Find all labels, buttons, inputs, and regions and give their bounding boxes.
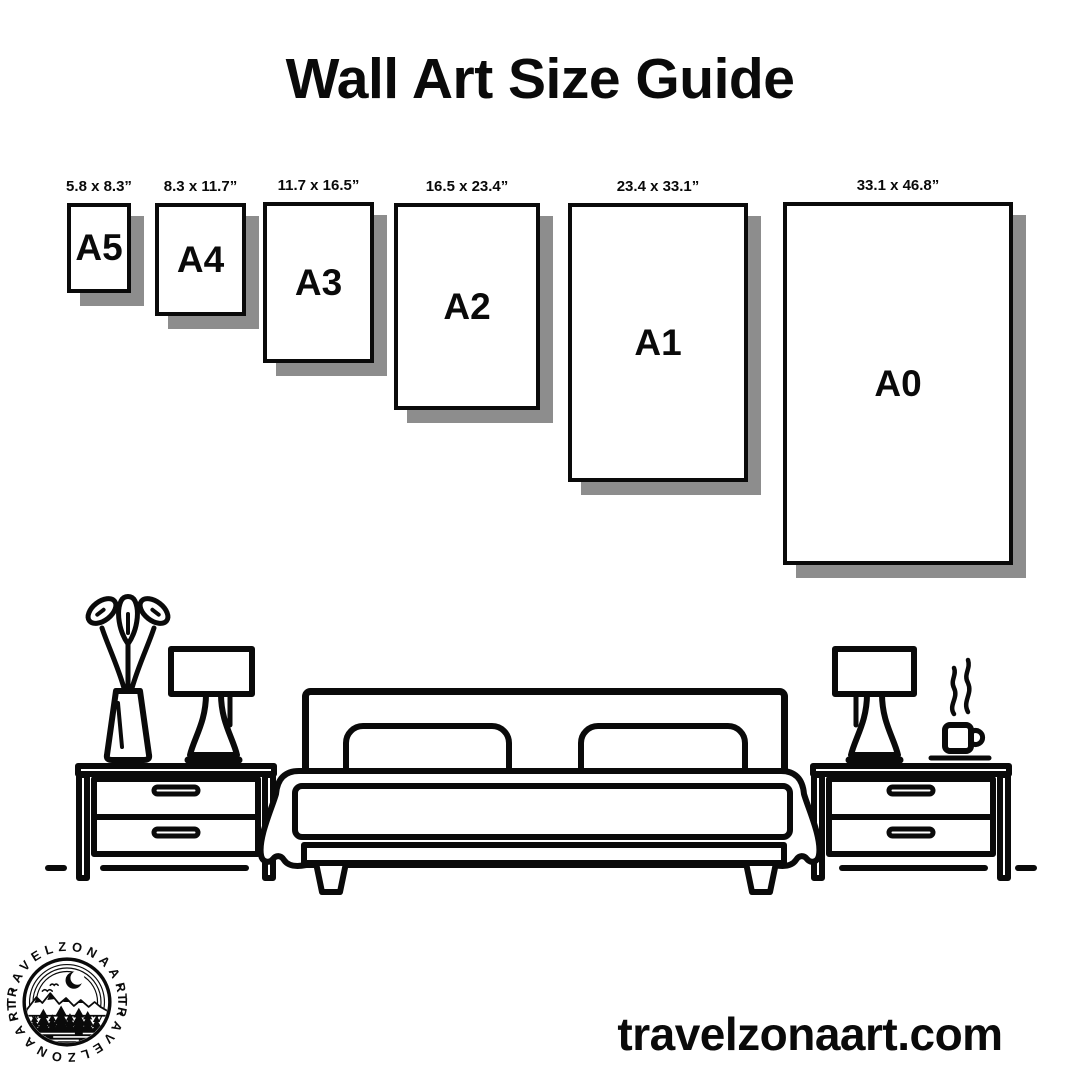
logo-emblem-scene [26, 965, 109, 1043]
frame-size-label: 8.3 x 11.7” [164, 178, 237, 195]
birds-icon [42, 984, 58, 991]
drawer-handle [154, 787, 198, 794]
coffee-cup-icon [931, 660, 989, 758]
frame-letter: A2 [443, 286, 490, 328]
drawer-handle [154, 829, 198, 836]
blanket-panel [295, 786, 790, 837]
frame-letter: A5 [75, 227, 122, 269]
table-lamp-right-icon [835, 649, 914, 760]
vase [107, 691, 149, 760]
mountains-icon [27, 993, 108, 1016]
table-lamp-left-icon [171, 649, 252, 760]
bed-foot-right [746, 863, 776, 892]
double-bed [261, 692, 820, 893]
frame-letter: A1 [634, 322, 681, 364]
brand-logo-badge: •TRAVELZONAART• [2, 937, 132, 1067]
bedroom-illustration [40, 585, 1040, 900]
nightstand-right [813, 766, 1034, 878]
website-url: travelzonaart.com [600, 1007, 1020, 1061]
leaf-icon [136, 594, 173, 629]
frame-size-label: 33.1 x 46.8” [857, 177, 940, 194]
frame-a5: 5.8 x 8.3” A5 [67, 203, 131, 293]
frame-a4: 8.3 x 11.7” A4 [155, 203, 246, 316]
bed-foot-left [316, 863, 346, 892]
frame-size-label: 23.4 x 33.1” [617, 178, 700, 195]
frame-size-label: 5.8 x 8.3” [66, 178, 132, 195]
bed-base [304, 845, 784, 863]
poster-canvas: Wall Art Size Guide 5.8 x 8.3” A5 8.3 x … [0, 0, 1080, 1080]
page-title: Wall Art Size Guide [0, 46, 1080, 112]
frame-size-label: 16.5 x 23.4” [426, 178, 509, 195]
frame-a2: 16.5 x 23.4” A2 [394, 203, 540, 410]
leaf-icon [84, 594, 121, 629]
frame-a3: 11.7 x 16.5” A3 [263, 202, 374, 363]
frame-a0: 33.1 x 46.8” A0 [783, 202, 1013, 565]
nightstand-left [48, 766, 274, 878]
plant-vase [84, 594, 173, 760]
frame-letter: A4 [177, 239, 224, 281]
frame-size-label: 11.7 x 16.5” [278, 177, 360, 194]
drawer-handle [889, 787, 933, 794]
drawer-handle [889, 829, 933, 836]
frame-letter: A3 [295, 262, 342, 304]
frame-a1: 23.4 x 33.1” A1 [568, 203, 748, 482]
frame-letter: A0 [874, 363, 921, 405]
